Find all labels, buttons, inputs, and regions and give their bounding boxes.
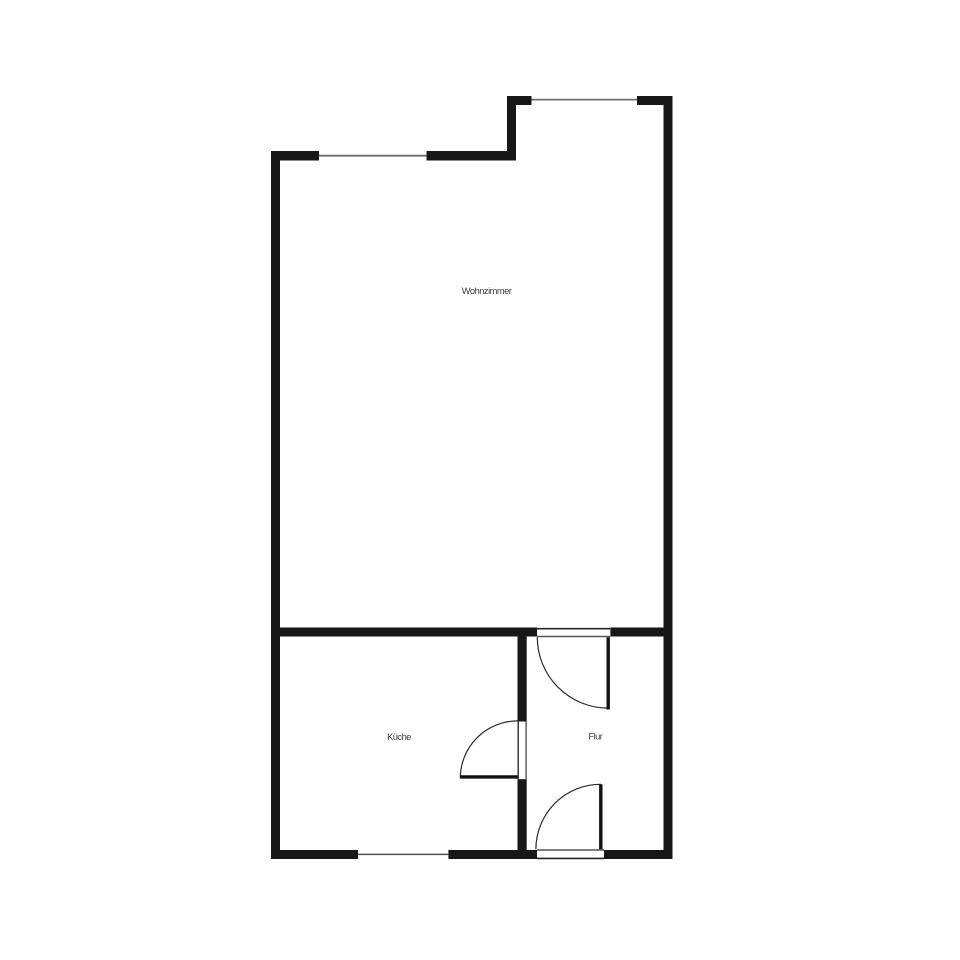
svg-text:Küche: Küche [387, 732, 411, 742]
svg-text:Wohnzimmer: Wohnzimmer [462, 286, 512, 296]
svg-text:Flur: Flur [588, 732, 602, 742]
